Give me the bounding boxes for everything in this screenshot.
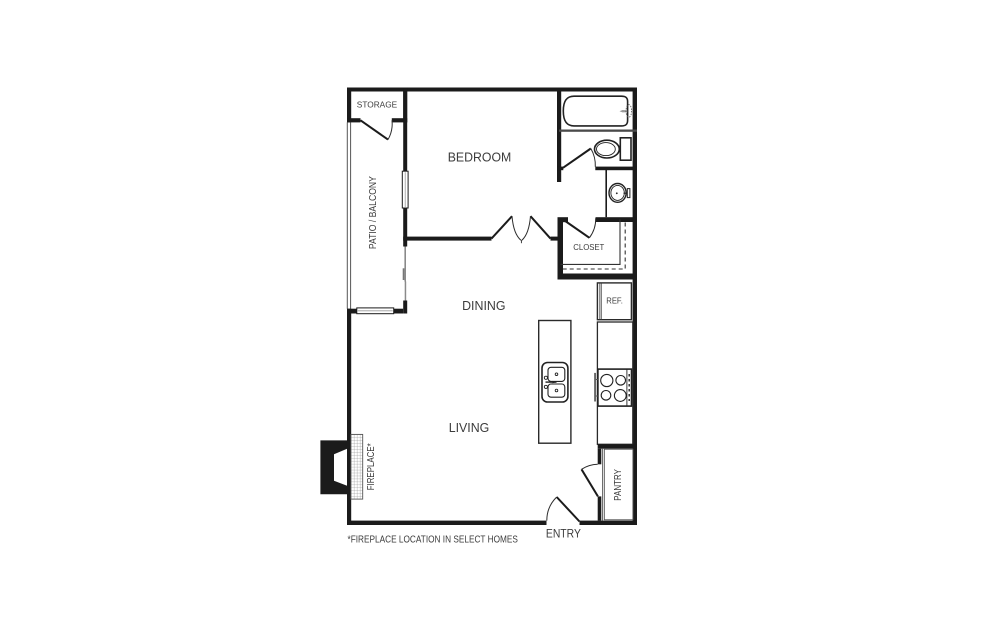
svg-text:CLOSET: CLOSET: [573, 242, 604, 252]
svg-text:REF.: REF.: [606, 296, 623, 306]
svg-text:LIVING: LIVING: [449, 421, 490, 435]
svg-text:STORAGE: STORAGE: [357, 101, 397, 110]
svg-text:PATIO / BALCONY: PATIO / BALCONY: [368, 176, 379, 249]
svg-text:BEDROOM: BEDROOM: [448, 150, 512, 164]
svg-text:FIREPLACE*: FIREPLACE*: [366, 443, 377, 490]
svg-text:DINING: DINING: [462, 299, 505, 313]
svg-text:ENTRY: ENTRY: [546, 526, 581, 540]
svg-text:PANTRY: PANTRY: [613, 469, 624, 501]
svg-text:*FIREPLACE LOCATION IN SELECT: *FIREPLACE LOCATION IN SELECT HOMES: [348, 535, 519, 546]
